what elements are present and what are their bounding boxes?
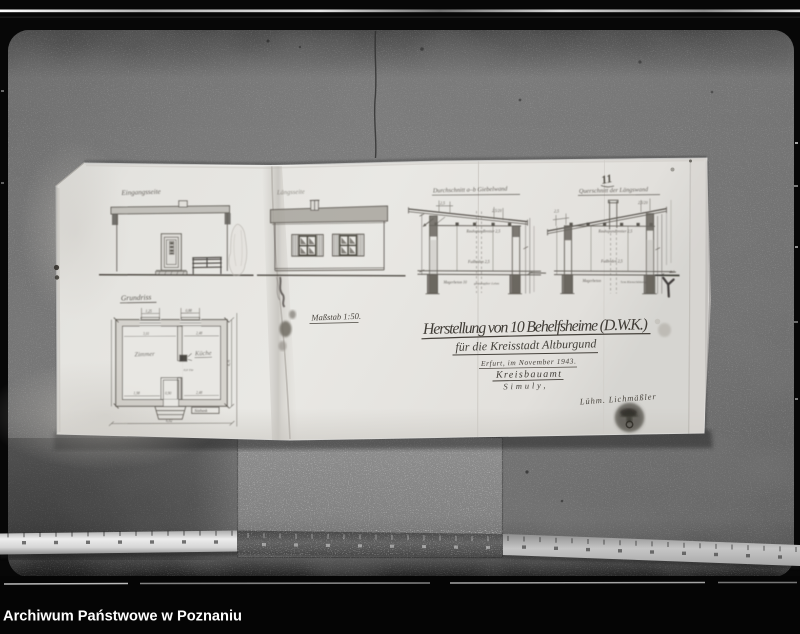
svg-text:Sitzbank: Sitzbank (195, 409, 208, 413)
svg-text:gestampfter Lehm: gestampfter Lehm (474, 282, 500, 286)
svg-text:Grundriss: Grundriss (121, 292, 152, 302)
svg-text:Maßstab 1:50.: Maßstab 1:50. (310, 311, 361, 323)
svg-text:Küche: Küche (194, 350, 212, 358)
svg-text:Archiwum Państwowe w Poznaniu: Archiwum Państwowe w Poznaniu (3, 608, 242, 625)
svg-text:Magerbeton: Magerbeton (582, 279, 602, 283)
svg-text:Kreisbauamt: Kreisbauamt (495, 369, 561, 381)
svg-text:Eingangsseite: Eingangsseite (120, 188, 161, 197)
svg-text:Zimmer: Zimmer (134, 351, 155, 359)
svg-text:5cm Kiesschüttung: 5cm Kiesschüttung (621, 280, 647, 284)
svg-text:Magerbeton 10: Magerbeton 10 (443, 281, 467, 285)
svg-text:Längsseite: Längsseite (276, 189, 305, 197)
